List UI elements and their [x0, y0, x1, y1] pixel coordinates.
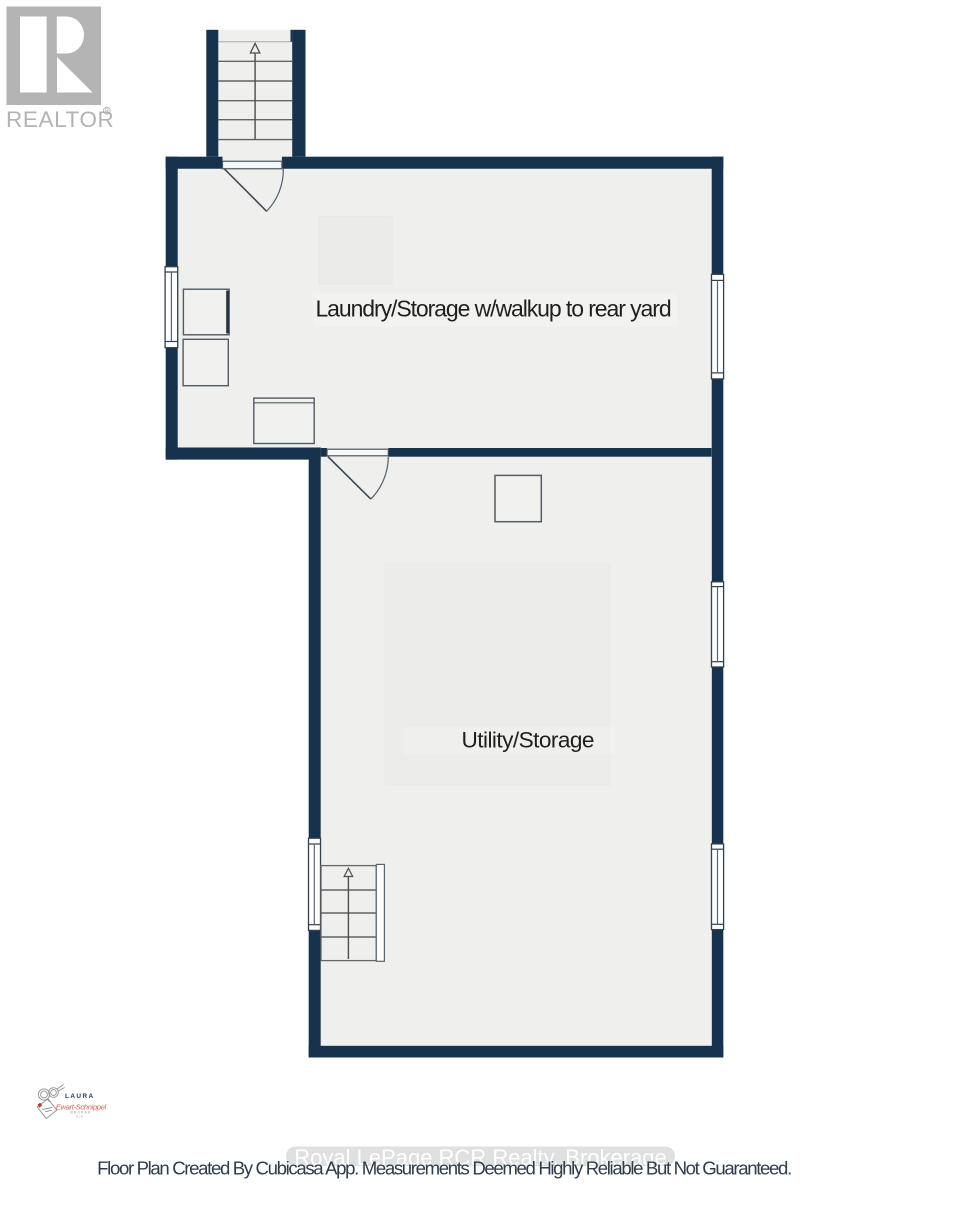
svg-text:RCR: RCR [76, 1115, 84, 1119]
svg-text:LAURA: LAURA [65, 1093, 95, 1100]
svg-text:Floor Plan Created By Cubicasa: Floor Plan Created By Cubicasa App. Meas… [97, 1158, 791, 1179]
svg-text:R: R [105, 109, 110, 115]
svg-text:Utility/Storage: Utility/Storage [462, 728, 594, 753]
svg-text:REALTOR: REALTOR [6, 107, 114, 132]
svg-text:Laundry/Storage w/walkup to re: Laundry/Storage w/walkup to rear yard [315, 296, 670, 322]
